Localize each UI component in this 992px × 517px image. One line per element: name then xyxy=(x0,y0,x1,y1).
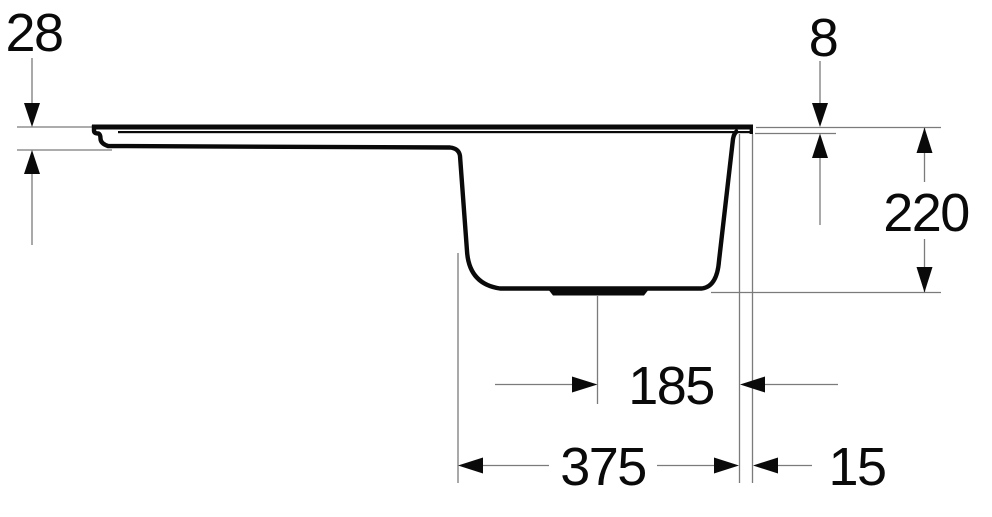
arrow-left-15 xyxy=(753,458,778,474)
arrow-down-8 xyxy=(812,103,828,127)
dim-label-185: 185 xyxy=(628,356,714,416)
dimension-arrows-group xyxy=(24,103,933,474)
sink-rim-right-edge xyxy=(750,125,753,135)
sink-drain-recess xyxy=(546,287,651,296)
thin-lines-group xyxy=(17,58,941,483)
arrow-down-220 xyxy=(917,267,933,293)
dim-label-28: 28 xyxy=(5,3,62,63)
sink-dimension-drawing: 28 8 220 185 375 15 xyxy=(0,0,992,517)
arrow-left-375 xyxy=(458,458,483,474)
dim-label-375: 375 xyxy=(560,437,646,497)
sink-body-outline xyxy=(94,125,738,289)
arrow-right-375 xyxy=(714,458,739,474)
arrow-up-28 xyxy=(24,150,40,174)
dim-label-15: 15 xyxy=(828,437,885,497)
arrow-down-28 xyxy=(24,103,40,127)
arrow-up-8 xyxy=(812,134,828,159)
sink-profile-group xyxy=(92,125,753,296)
arrow-right-185 xyxy=(572,377,598,393)
arrow-up-220 xyxy=(917,128,933,154)
sink-technical-drawing-svg: 28 8 220 185 375 15 xyxy=(0,0,992,517)
dimension-labels-group: 28 8 220 185 375 15 xyxy=(5,3,968,497)
dim-label-220: 220 xyxy=(883,183,969,243)
sink-rim-top-surface xyxy=(92,125,753,130)
dim-label-8: 8 xyxy=(809,8,838,68)
sink-rim-inner-line xyxy=(118,131,753,133)
